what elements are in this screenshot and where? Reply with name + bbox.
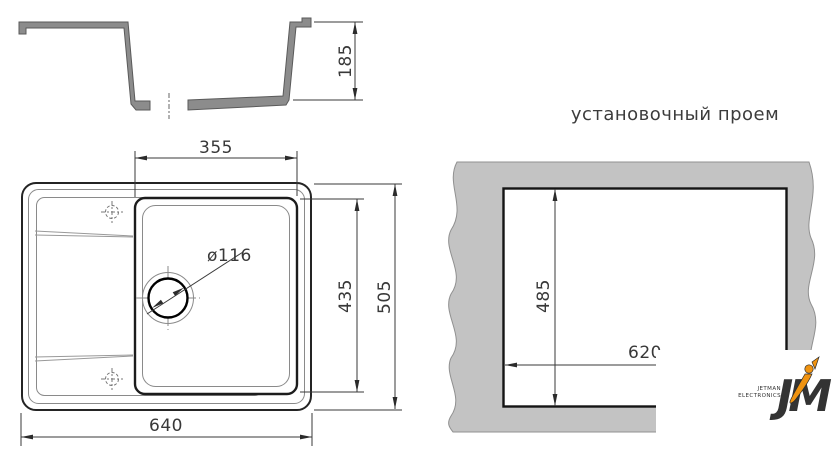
cutout-title: установочный проем — [571, 104, 779, 125]
section-profile-right — [188, 18, 311, 110]
drain-circle — [149, 279, 188, 318]
section-profile-left — [19, 22, 150, 110]
technical-drawing-sink: 185 — [0, 0, 840, 465]
watermark-brand-bottom: ELECTRONICS — [738, 393, 781, 399]
dimension-label-435: 435 — [336, 279, 356, 313]
plan-view: ø116 355 435 505 — [21, 138, 402, 446]
watermark-monogram: JM — [769, 371, 831, 422]
dimension-label-185: 185 — [336, 44, 356, 78]
watermark: JETMAN ELECTRONICS JM — [656, 350, 840, 465]
dimension-label-485: 485 — [534, 279, 554, 313]
dimension-overall-width-640: 640 — [21, 413, 312, 446]
dimension-label-drain: ø116 — [207, 246, 252, 266]
dimension-depth-185: 185 — [293, 22, 363, 100]
dimension-label-640: 640 — [149, 416, 183, 436]
section-view: 185 — [19, 18, 363, 119]
dimension-overall-depth-505: 505 — [314, 184, 402, 410]
dimension-label-355: 355 — [199, 138, 233, 158]
dimension-label-505: 505 — [375, 280, 395, 314]
